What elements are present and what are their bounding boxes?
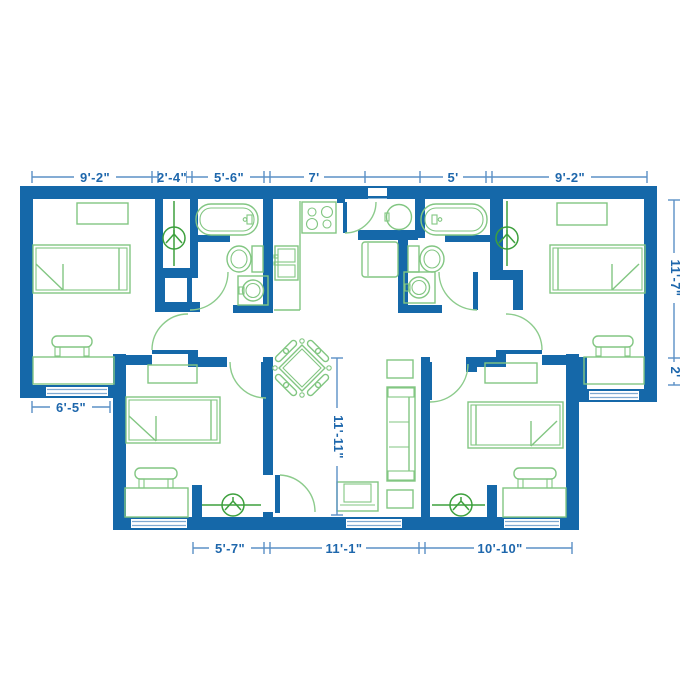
chair-desk2 — [593, 336, 633, 356]
bed-4 — [468, 402, 563, 448]
interior-walls — [113, 186, 579, 530]
desk-bed1 — [33, 357, 114, 384]
door-entry — [343, 202, 376, 233]
dimension-bottom: 5'-7" 11'-1" 10'-10" — [193, 541, 572, 556]
dim-label: 11'-7" — [668, 260, 683, 297]
shelf-bed1 — [77, 203, 128, 224]
window-bed2 — [589, 391, 639, 400]
dimension-left: 6'-5" — [32, 400, 110, 415]
dimension-top: 9'-2" 2'-4" 5'-6" 7' 5' 9'-2" — [32, 170, 647, 185]
desk-bed4 — [503, 488, 566, 517]
shelf-bed2 — [557, 203, 607, 225]
bathtub-1 — [196, 204, 258, 235]
dim-label: 5' — [447, 170, 458, 185]
dim-label: 9'-2" — [555, 170, 585, 185]
bathtub-2 — [421, 204, 487, 235]
window-living — [346, 519, 402, 528]
window-bed3 — [131, 519, 187, 528]
dim-label: 11'-11" — [331, 415, 346, 459]
dim-label: 5'-7" — [215, 541, 245, 556]
door-closet-living — [275, 475, 315, 513]
side-table-top — [387, 360, 413, 378]
stove-icon — [302, 202, 336, 233]
sofa — [387, 387, 415, 481]
kitchen-sink — [274, 246, 298, 280]
bathroom-1-fixtures — [196, 204, 268, 305]
door-bedroom-2 — [506, 314, 542, 354]
round-appliance — [387, 205, 412, 230]
floor-plan-canvas: 9'-2" 2'-4" 5'-6" 7' 5' 9'-2" 5'-7" 11'-… — [0, 0, 700, 700]
dim-label: 2'-4" — [157, 170, 187, 185]
door-bathroom-2 — [439, 272, 478, 310]
shelf-bed3 — [148, 365, 197, 383]
chair-desk4 — [514, 468, 556, 488]
window-bed1 — [46, 387, 108, 396]
closet-1 — [163, 201, 185, 266]
desk-bed2 — [584, 357, 644, 384]
fridge — [362, 242, 398, 277]
door-bedroom-4 — [427, 362, 468, 402]
bed-3 — [126, 397, 220, 443]
side-table-bottom — [387, 490, 413, 508]
dim-label: 6'-5" — [56, 400, 86, 415]
dim-label: 10'-10" — [477, 541, 522, 556]
armchair — [337, 482, 378, 511]
dim-label: 5'-6" — [214, 170, 244, 185]
bed-1 — [33, 245, 130, 293]
door-bedroom-3 — [230, 362, 266, 398]
desk-bed3 — [125, 488, 188, 517]
washer-2 — [404, 272, 435, 303]
bedroom-4-furniture — [432, 363, 566, 517]
dimension-right: 11'-7" 2' — [667, 200, 683, 385]
dim-label: 9'-2" — [80, 170, 110, 185]
chair-desk1 — [52, 336, 92, 356]
closet-4 — [432, 494, 485, 516]
bed-2 — [550, 245, 645, 293]
dim-label: 7' — [308, 170, 319, 185]
floor-plan-page: 9'-2" 2'-4" 5'-6" 7' 5' 9'-2" 5'-7" 11'-… — [0, 0, 700, 700]
closet-3 — [202, 494, 261, 516]
dim-label: 2' — [668, 366, 683, 377]
toilet-2 — [408, 246, 444, 272]
kitchen — [274, 201, 336, 310]
toilet-1 — [227, 246, 263, 272]
window-bed4 — [504, 519, 560, 528]
dining-table — [273, 339, 331, 397]
door-bedroom-1 — [152, 314, 188, 354]
chair-desk3 — [135, 468, 177, 488]
dim-label: 11'-1" — [326, 541, 363, 556]
